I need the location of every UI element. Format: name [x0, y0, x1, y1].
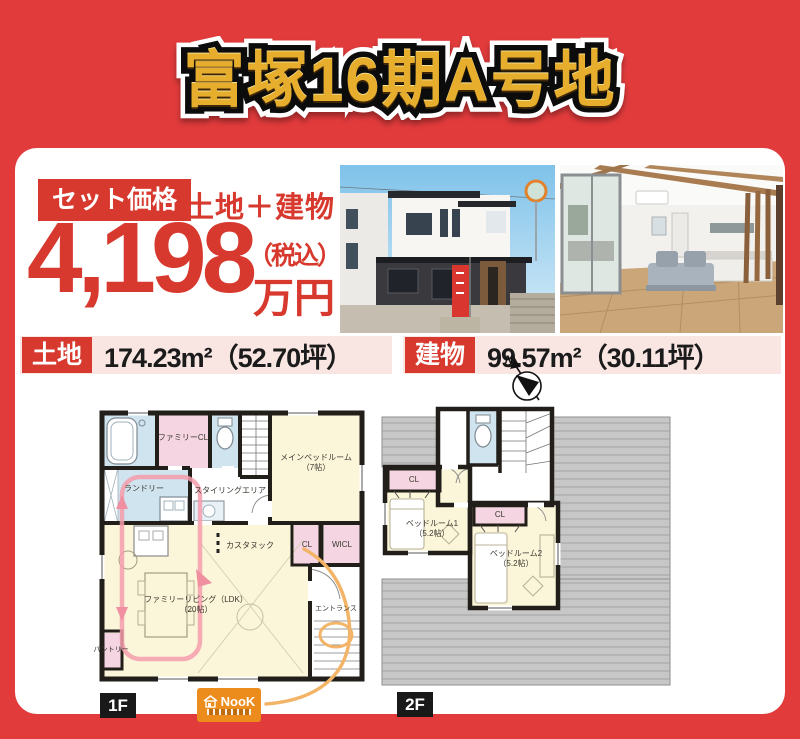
house-icon — [203, 695, 218, 708]
room-label-closet-bedroom1: CL — [409, 475, 419, 485]
room-label-entrance: エントランス — [315, 606, 357, 615]
room-label-bedroom1: ベッドルーム1（5.2帖） — [406, 519, 458, 539]
room-label-closet-bedroom2: CL — [495, 510, 505, 520]
room-label-laundry: ランドリー — [124, 484, 164, 494]
land-area-row: 土地 174.23m²（52.70坪） — [20, 336, 392, 374]
logo-text: NooK — [221, 695, 256, 708]
room-label-styling-area: スタイリングエリア — [194, 486, 266, 496]
interior-photo — [560, 165, 783, 333]
exterior-photo-illustration — [340, 165, 555, 333]
headline-banner: 富塚16期A号地 富塚16期A号地 富塚16期A号地 — [90, 16, 710, 132]
floorplan-1f: ファミリーCL メインベッドルーム（7帖） ランドリー スタイリングエリア カス… — [98, 405, 375, 715]
compass-icon: N — [503, 356, 549, 406]
price-unit: 万円 — [253, 264, 335, 324]
room-label-family-closet: ファミリーCL — [158, 433, 208, 443]
logo-tagline-strip — [207, 709, 251, 715]
land-area-value: 174.23m²（52.70坪） — [104, 336, 352, 375]
room-label-bedroom2: ベッドルーム2（5.2帖） — [490, 549, 542, 569]
room-label-family-living: ファミリーリビング（LDK）（20帖） — [144, 595, 248, 615]
page-title: 富塚16期A号地 — [90, 16, 710, 132]
room-label-pantry: パントリー — [93, 647, 128, 656]
content-card: セット価格 土地＋建物 4,198 （税込） 万円 — [15, 148, 785, 714]
building-area-row: 建物 99.57m²（30.11坪） — [403, 336, 781, 374]
exterior-photo — [340, 165, 555, 333]
compass-north-label: N — [505, 354, 513, 366]
interior-photo-illustration — [560, 165, 783, 333]
floorplan-2f-drawing — [380, 403, 672, 690]
price-amount: 4,198 — [27, 206, 252, 311]
flyer-page: 富塚16期A号地 富塚16期A号地 富塚16期A号地 セット価格 土地＋建物 4… — [0, 0, 800, 739]
land-badge: 土地 — [22, 337, 92, 373]
floor-tag-2f: 2F — [397, 692, 433, 717]
room-label-closet-1f: CL — [302, 540, 312, 550]
building-badge: 建物 — [405, 337, 475, 373]
floorplan-1f-drawing — [98, 405, 375, 715]
room-label-custom-nook: カスタヌック — [226, 541, 274, 551]
room-label-walk-in-closet: WICL — [332, 540, 352, 550]
nook-logo: NooK — [197, 688, 261, 722]
floor-tag-1f: 1F — [100, 693, 136, 718]
floorplan-2f: CL CL ベッドルーム1（5.2帖） ベッドルーム2（5.2帖） — [380, 403, 672, 690]
room-label-main-bedroom: メインベッドルーム（7帖） — [280, 453, 352, 473]
